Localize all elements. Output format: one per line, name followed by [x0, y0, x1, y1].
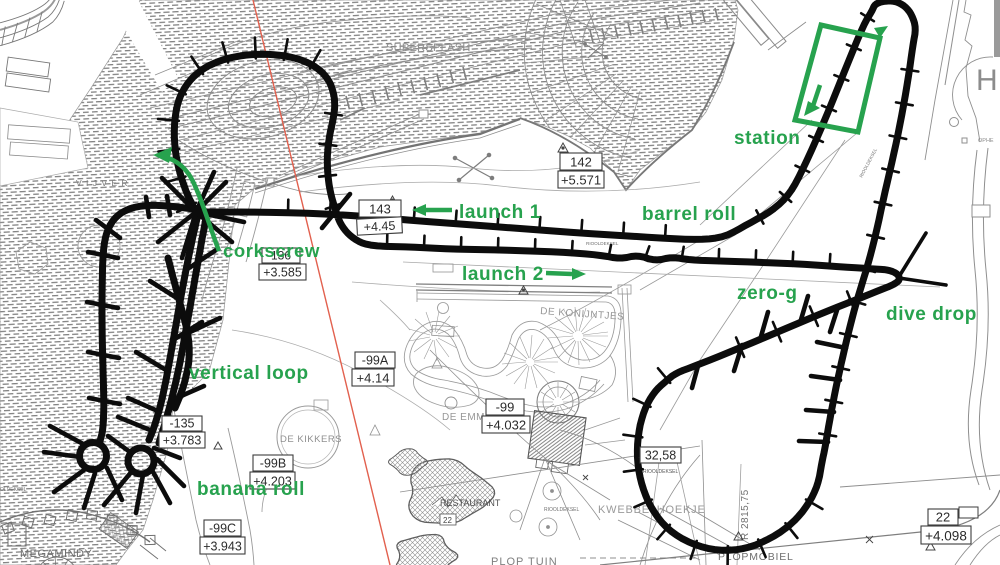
svg-text:MEGAMINDY: MEGAMINDY [20, 548, 93, 560]
svg-text:+3.783: +3.783 [163, 434, 202, 448]
svg-text:142: 142 [570, 155, 592, 170]
svg-text:+4.14: +4.14 [357, 371, 390, 386]
svg-text:DE KIKKERS: DE KIKKERS [280, 434, 342, 445]
svg-text:-99B: -99B [260, 457, 286, 471]
svg-text:H: H [976, 64, 998, 97]
svg-text:-99C: -99C [209, 522, 236, 536]
svg-text:banana roll: banana roll [197, 479, 305, 500]
svg-text:RIOOLDEKSEL: RIOOLDEKSEL [586, 241, 619, 246]
svg-text:-135: -135 [169, 417, 194, 431]
svg-text:R 2815,75: R 2815,75 [740, 489, 751, 540]
svg-text:22: 22 [443, 516, 452, 525]
svg-text:RESTAURANT: RESTAURANT [440, 498, 501, 508]
svg-text:OLDEKSEL: OLDEKSEL [0, 487, 27, 493]
svg-text:corkscrew: corkscrew [223, 240, 320, 261]
svg-text:PLOP TUIN: PLOP TUIN [491, 556, 558, 565]
svg-text:RIOOLDEKSEL: RIOOLDEKSEL [643, 469, 679, 475]
svg-text:SUPERSPLASH: SUPERSPLASH [386, 42, 471, 54]
svg-text:vertical loop: vertical loop [189, 363, 309, 384]
svg-text:+3.585: +3.585 [263, 266, 302, 280]
svg-text:32,58: 32,58 [645, 449, 676, 463]
svg-text:+4.45: +4.45 [363, 219, 395, 235]
svg-text:+4.098: +4.098 [925, 529, 967, 544]
svg-text:+4.032: +4.032 [486, 418, 526, 433]
svg-text:V I J V E R: V I J V E R [76, 178, 129, 188]
svg-text:+5.571: +5.571 [561, 173, 601, 188]
svg-text:launch 1: launch 1 [459, 202, 541, 223]
svg-text:station: station [734, 128, 800, 149]
svg-text:OPHE: OPHE [978, 138, 994, 144]
svg-text:zero-g: zero-g [737, 283, 798, 304]
svg-text:barrel roll: barrel roll [642, 204, 736, 225]
svg-text:-99A: -99A [362, 354, 389, 368]
svg-text:RIOOLDEKSEL: RIOOLDEKSEL [544, 507, 580, 513]
svg-text:+3.943: +3.943 [203, 540, 242, 554]
svg-text:143: 143 [369, 202, 391, 217]
svg-text:launch 2: launch 2 [462, 264, 544, 285]
svg-text:dive drop: dive drop [886, 304, 977, 325]
svg-text:-99: -99 [496, 400, 515, 415]
svg-text:22: 22 [936, 510, 950, 525]
